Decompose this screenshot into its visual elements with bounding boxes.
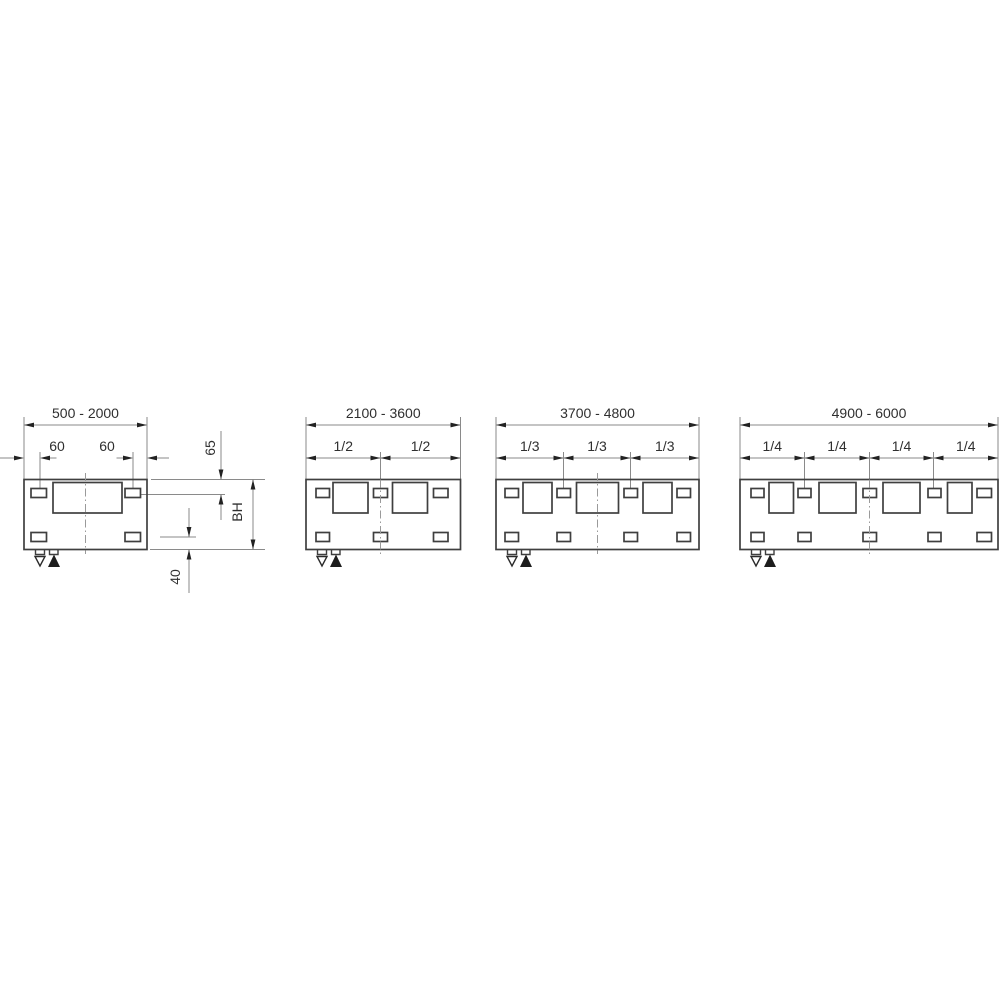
filled-up-triangle-icon [330,555,342,568]
mounting-slot-bottom [624,533,638,542]
mounting-slot-top [798,489,811,498]
dimension-arrow [187,550,192,560]
drawing-canvas: 500 - 2000606065BH402100 - 36001/21/2370… [0,0,1000,1000]
mounting-slot-top [928,489,941,498]
cutout-opening [333,483,368,514]
dimension-arrow [631,456,641,461]
diagram-3700-4800: 3700 - 48001/31/31/3 [496,405,699,567]
dimension-arrow [564,456,574,461]
dimension-arrow [251,540,256,550]
open-down-triangle-icon [507,557,517,567]
cutout-opening [53,483,122,514]
mounting-slot-bottom [977,533,992,542]
open-down-triangle-icon [751,557,761,567]
cutout-opening [523,483,552,514]
dimension-arrow [689,423,699,428]
span-label: 1/2 [411,438,431,454]
dimension-arrow [870,456,880,461]
dimension-arrow [740,456,750,461]
offset-dimension-label: 60 [49,438,65,454]
filled-up-triangle-icon [520,555,532,568]
mounting-slot-top [557,489,571,498]
dimension-arrow [219,470,224,480]
diagram-4900-6000: 4900 - 60001/41/41/41/4 [740,405,998,567]
dimension-arrow [381,456,391,461]
mounting-slot-bottom [798,533,811,542]
side-dimension-label: BH [229,502,245,521]
filled-up-triangle-icon [764,555,776,568]
mounting-slot-top [31,489,47,498]
mounting-slot-bottom [505,533,519,542]
dimension-arrow [689,456,699,461]
dimension-arrow [251,480,256,490]
dimension-arrow [147,456,157,461]
mounting-slot-top [624,489,638,498]
dimension-arrow [860,456,870,461]
mounting-slot-bottom [751,533,764,542]
dimension-arrow [306,423,316,428]
diagram-500-2000: 500 - 2000606065BH40 [0,405,265,593]
dimension-arrow [371,456,381,461]
span-label: 1/3 [520,438,540,454]
mounting-slot-top [125,489,141,498]
mounting-slot-top [751,489,764,498]
dimension-arrow [40,456,50,461]
open-down-triangle-icon [35,557,45,567]
mounting-slot-bottom [677,533,691,542]
span-label: 1/2 [334,438,354,454]
side-dimension-label: 40 [167,569,183,585]
mounting-slot-top [316,489,330,498]
dimension-arrow [988,423,998,428]
mounting-slot-bottom [125,533,141,542]
cutout-opening [393,483,428,514]
range-label: 2100 - 3600 [346,405,421,421]
span-label: 1/4 [827,438,847,454]
dimension-arrow [14,456,24,461]
mounting-slot-bottom [557,533,571,542]
range-label: 4900 - 6000 [832,405,907,421]
cutout-opening [769,483,794,514]
mounting-slot-bottom [434,533,449,542]
cutout-opening [819,483,856,514]
open-down-triangle-icon [317,557,327,567]
span-label: 1/3 [587,438,607,454]
dimension-arrow [496,456,506,461]
dimension-arrow [795,456,805,461]
dimension-arrow [219,495,224,505]
dimension-arrow [306,456,316,461]
dimension-arrow [451,456,461,461]
dimension-arrow [988,456,998,461]
span-label: 1/4 [763,438,783,454]
dimension-arrow [934,456,944,461]
dimension-arrow [496,423,506,428]
cutout-opening [948,483,973,514]
mounting-slot-bottom [31,533,47,542]
mounting-slot-top [434,489,449,498]
dimension-arrow [137,423,147,428]
filled-up-triangle-icon [48,555,60,568]
cutout-opening [883,483,920,514]
span-label: 1/3 [655,438,675,454]
dimension-arrow [187,527,192,537]
mounting-slot-top [977,489,992,498]
dimension-arrow [740,423,750,428]
dimension-arrow [451,423,461,428]
cutout-opening [643,483,672,514]
technical-drawing: 500 - 2000606065BH402100 - 36001/21/2370… [0,0,1000,1000]
range-label: 500 - 2000 [52,405,119,421]
dimension-arrow [554,456,564,461]
dimension-arrow [805,456,815,461]
dimension-arrow [621,456,631,461]
span-label: 1/4 [892,438,912,454]
diagram-2100-3600: 2100 - 36001/21/2 [306,405,461,567]
offset-dimension-label: 60 [99,438,115,454]
dimension-arrow [924,456,934,461]
dimension-arrow [24,423,34,428]
range-label: 3700 - 4800 [560,405,635,421]
mounting-slot-bottom [316,533,330,542]
mounting-slot-top [505,489,519,498]
dimension-arrow [123,456,133,461]
mounting-slot-top [677,489,691,498]
mounting-slot-bottom [928,533,941,542]
side-dimension-label: 65 [202,440,218,456]
span-label: 1/4 [956,438,976,454]
